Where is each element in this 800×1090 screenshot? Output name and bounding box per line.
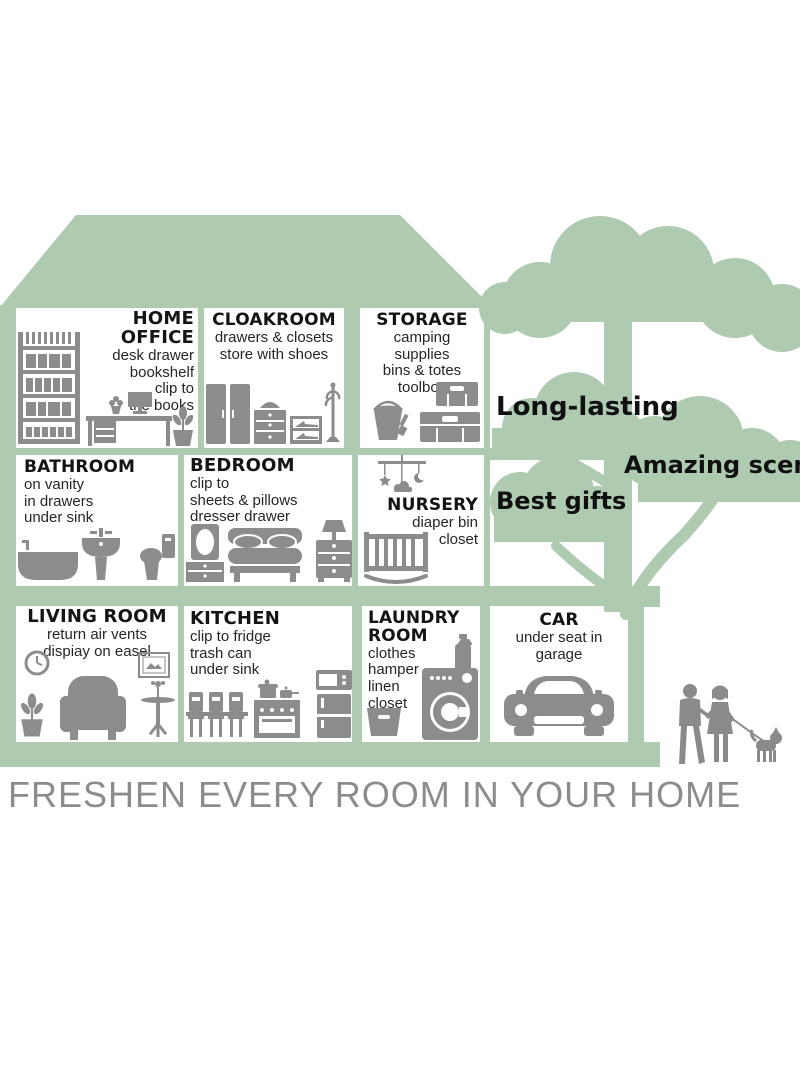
dining-set-icon [186, 690, 248, 738]
ground-band [0, 742, 660, 767]
bathtub-icon [18, 538, 78, 582]
picture-frame-icon [138, 652, 170, 678]
room-title: BEDROOM [190, 457, 298, 476]
room-line: desk drawer [62, 348, 194, 365]
toilet-icon [140, 534, 176, 582]
bed-icon [228, 528, 302, 582]
potted-plant-icon [18, 692, 46, 738]
window-opening-top [490, 322, 604, 448]
room-line: under sink [190, 662, 280, 679]
washing-machine-icon [422, 668, 478, 740]
room-title: STORAGE [360, 312, 484, 330]
room-panel-living-room: LIVING ROOM return air vents dispiay on … [16, 606, 178, 742]
mirror-dresser-icon [186, 524, 224, 582]
stacked-toolboxes-icon [420, 380, 480, 444]
coat-rack-icon [324, 382, 342, 444]
room-line: clip to [190, 476, 298, 493]
fridge-with-microwave-icon [316, 670, 352, 738]
wall-clock-icon [24, 650, 50, 676]
infographic-canvas: Long-lasting Amazing scent Best gifts HO… [0, 0, 800, 1090]
room-line: trash can [190, 646, 280, 663]
room-panel-car: CAR under seat in garage [490, 606, 628, 742]
house-roof [0, 215, 492, 307]
detergent-bottle-icon [454, 634, 472, 670]
room-line: on vanity [24, 477, 135, 494]
room-panel-cloakroom: CLOAKROOM drawers & closets store with s… [204, 308, 344, 448]
room-panel-kitchen: KITCHEN clip to fridge trash can under s… [184, 606, 352, 742]
stove-with-pots-icon [254, 678, 300, 738]
window-opening-middle [490, 460, 604, 586]
dog-leash [734, 720, 765, 742]
room-line: supplies [360, 347, 484, 364]
pedestal-sink-icon [82, 526, 120, 582]
room-panel-bedroom: BEDROOM clip to sheets & pillows dresser… [184, 455, 352, 586]
rocking-crib-icon [364, 526, 428, 584]
room-line: under seat in [490, 630, 628, 647]
room-line: bookshelf [62, 365, 194, 382]
chest-of-drawers-icon [254, 400, 286, 444]
armchair-icon [60, 676, 126, 740]
room-line: garage [490, 647, 628, 664]
room-line: sheets & pillows [190, 493, 298, 510]
room-panel-bathroom: BATHROOM on vanity in drawers under sink [16, 455, 178, 586]
room-line: store with shoes [204, 347, 344, 364]
room-line: clip to fridge [190, 629, 280, 646]
room-line: in drawers [24, 494, 135, 511]
room-title: LAUNDRY ROOM [368, 610, 460, 646]
room-title: CAR [490, 612, 628, 630]
potted-plant-icon [170, 406, 196, 446]
desk-with-computer-icon [86, 392, 172, 446]
label-long-lasting: Long-lasting [496, 392, 679, 422]
room-panel-storage: STORAGE camping supplies bins & totes to… [360, 308, 484, 448]
wardrobe-icon [206, 384, 250, 444]
room-title: CLOAKROOM [204, 312, 344, 330]
label-amazing-scent: Amazing scent [624, 451, 800, 479]
garage-right-wall [628, 607, 644, 742]
shoe-cabinet-icon [290, 414, 322, 444]
room-line: under sink [24, 510, 135, 527]
room-line: bins & totes [360, 363, 484, 380]
room-panel-laundry-room: LAUNDRY ROOM clothes hamper linen closet [362, 606, 480, 742]
room-line: drawers & closets [204, 330, 344, 347]
side-table-icon [140, 680, 176, 738]
room-title: LIVING ROOM [16, 608, 178, 627]
bucket-and-brush-icon [368, 398, 412, 442]
room-line: camping [360, 330, 484, 347]
car-front-icon [504, 670, 614, 736]
laundry-basket-icon [366, 706, 402, 738]
room-line: clothes [368, 646, 460, 663]
room-panel-home-office: HOME OFFICE desk drawer bookshelf clip t… [16, 308, 198, 448]
room-title: NURSERY [364, 497, 478, 515]
bookshelf-icon [18, 330, 80, 444]
room-panel-nursery: NURSERY diaper bin closet [358, 455, 484, 586]
label-best-gifts: Best gifts [496, 487, 626, 515]
room-title: HOME OFFICE [62, 310, 194, 348]
nightstand-with-lamp-icon [316, 520, 352, 582]
floor-divider-right [632, 586, 660, 607]
room-title: KITCHEN [190, 610, 280, 629]
family-walking-dog-illustration [668, 682, 788, 770]
banner-title: FRESHEN EVERY ROOM IN YOUR HOME [8, 774, 741, 816]
room-line: return air vents [16, 627, 178, 644]
room-title: BATHROOM [24, 459, 135, 477]
